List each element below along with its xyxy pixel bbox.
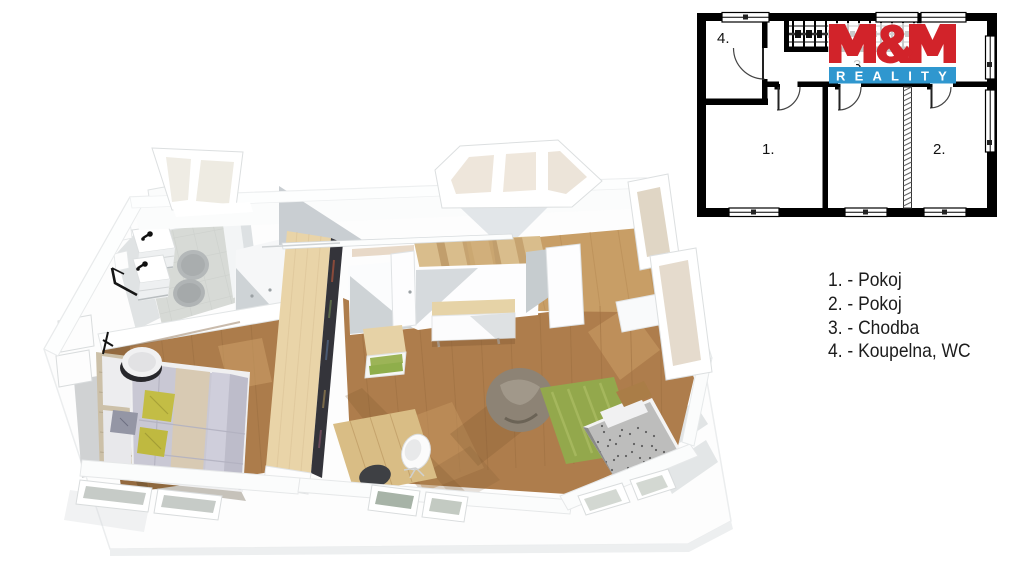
svg-text:REALITY: REALITY: [836, 69, 956, 84]
svg-text:1.: 1.: [762, 141, 775, 158]
svg-text:2.: 2.: [933, 141, 946, 158]
svg-text:4.: 4.: [717, 30, 730, 47]
